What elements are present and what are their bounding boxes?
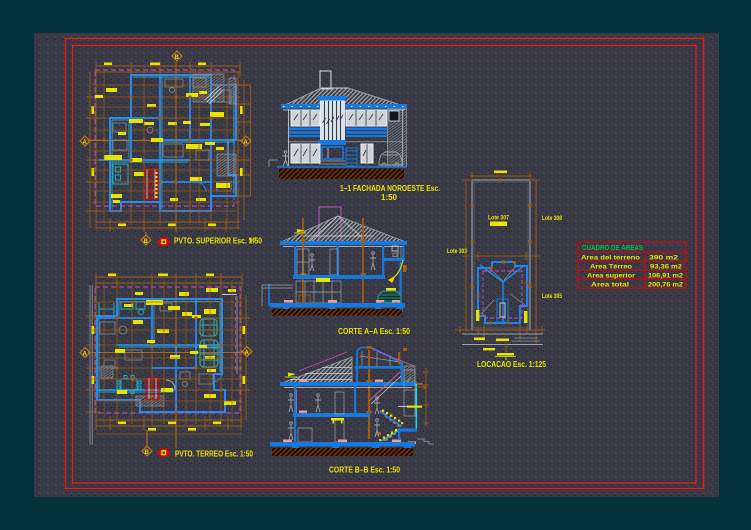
svg-text:1:50: 1:50 xyxy=(381,193,398,202)
svg-text:200,76 m2: 200,76 m2 xyxy=(648,282,683,289)
svg-text:CORTE A–A Esc. 1:50: CORTE A–A Esc. 1:50 xyxy=(338,327,410,336)
svg-text:PVTO. TERREO Esc. 1:50: PVTO. TERREO Esc. 1:50 xyxy=(175,450,253,459)
svg-text:106,91 m2: 106,91 m2 xyxy=(648,273,683,280)
svg-text:B: B xyxy=(144,239,149,245)
svg-text:Area superior: Area superior xyxy=(587,273,636,280)
svg-text:Lote 303: Lote 303 xyxy=(447,249,468,255)
svg-text:CORTE B–B Esc. 1:50: CORTE B–B Esc. 1:50 xyxy=(329,466,400,475)
svg-text:Area del terreno: Area del terreno xyxy=(581,255,640,262)
svg-text:A: A xyxy=(245,350,250,356)
svg-text:PVTO. SUPERIOR Esc. 1:50: PVTO. SUPERIOR Esc. 1:50 xyxy=(174,237,262,246)
svg-text:1–1 FACHADA NOROESTE Esc.: 1–1 FACHADA NOROESTE Esc. xyxy=(340,184,440,193)
svg-text:CUADRO DE AREAS: CUADRO DE AREAS xyxy=(582,245,643,252)
svg-text:A: A xyxy=(83,351,88,357)
svg-text:Lote 307: Lote 307 xyxy=(488,216,510,222)
svg-text:A: A xyxy=(244,140,249,146)
svg-text:A: A xyxy=(83,140,88,146)
svg-text:Lote 305: Lote 305 xyxy=(542,294,563,300)
svg-text:Lote 308: Lote 308 xyxy=(542,216,563,222)
svg-text:Area Térreo: Area Térreo xyxy=(590,264,632,271)
svg-text:LOCACAO Esc. 1:125: LOCACAO Esc. 1:125 xyxy=(477,360,546,369)
svg-text:B: B xyxy=(175,55,180,61)
svg-text:B: B xyxy=(145,450,150,456)
svg-text:93,36 m2: 93,36 m2 xyxy=(650,264,682,271)
svg-text:Area total: Area total xyxy=(591,282,629,289)
svg-text:390 m2: 390 m2 xyxy=(649,255,679,262)
